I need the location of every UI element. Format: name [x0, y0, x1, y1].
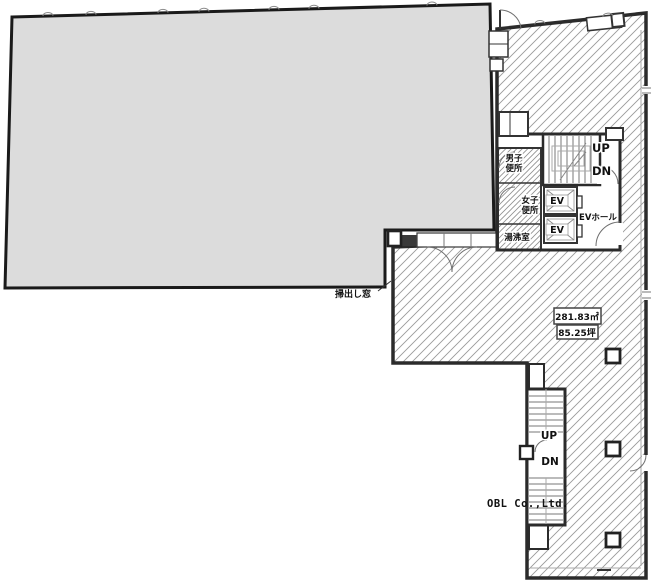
top-edge-window [586, 13, 624, 31]
elevator-1-label: EV [550, 196, 564, 207]
column [606, 442, 620, 456]
kitchenette-label: 湯沸室 [504, 232, 530, 243]
sub-stair-up-label: UP [541, 430, 558, 442]
pipe-shaft [499, 112, 528, 136]
mens-toilet-label-2: 便所 [505, 163, 523, 174]
sub-stair-vestibule-top [529, 364, 544, 390]
elevator-2-label: EV [550, 225, 564, 236]
west-window-small [490, 59, 503, 71]
watermark: OBL Co.,Ltd. [487, 498, 569, 510]
column [606, 349, 620, 363]
sub-stair-wall-box [520, 446, 533, 459]
column [606, 533, 620, 547]
area-tsubo-label: 85.25坪 [558, 327, 595, 339]
sweep-window-label: 掃出し窓 [335, 288, 371, 300]
ev1-door [577, 196, 582, 208]
area-label: 281.83㎡ 85.25坪 [554, 308, 601, 339]
area-m2-label: 281.83㎡ [555, 311, 599, 323]
womens-toilet-label-1: 女子 [521, 195, 539, 206]
ev-hall-door-gap [617, 223, 623, 245]
core-top-window [606, 128, 623, 140]
sub-stair-vestibule-bottom [529, 524, 548, 549]
main-stair-dn-label: DN [592, 164, 611, 178]
main-stair-up-label: UP [592, 141, 610, 155]
womens-toilet-label-2: 便所 [521, 205, 539, 216]
sub-stair-dn-label: DN [541, 456, 559, 468]
floor-plan-canvas: 281.83㎡ 85.25坪 UP DN EV EV EVホール 男子 便所 女… [0, 0, 655, 584]
top-window-square [611, 13, 624, 27]
ev2-door [577, 225, 582, 237]
column [388, 231, 401, 246]
floor-plan-page: 281.83㎡ 85.25坪 UP DN EV EV EVホール 男子 便所 女… [0, 0, 655, 584]
ev-hall-label: EVホール [579, 213, 617, 223]
window-band [417, 233, 500, 247]
mens-toilet-label-1: 男子 [505, 154, 523, 164]
